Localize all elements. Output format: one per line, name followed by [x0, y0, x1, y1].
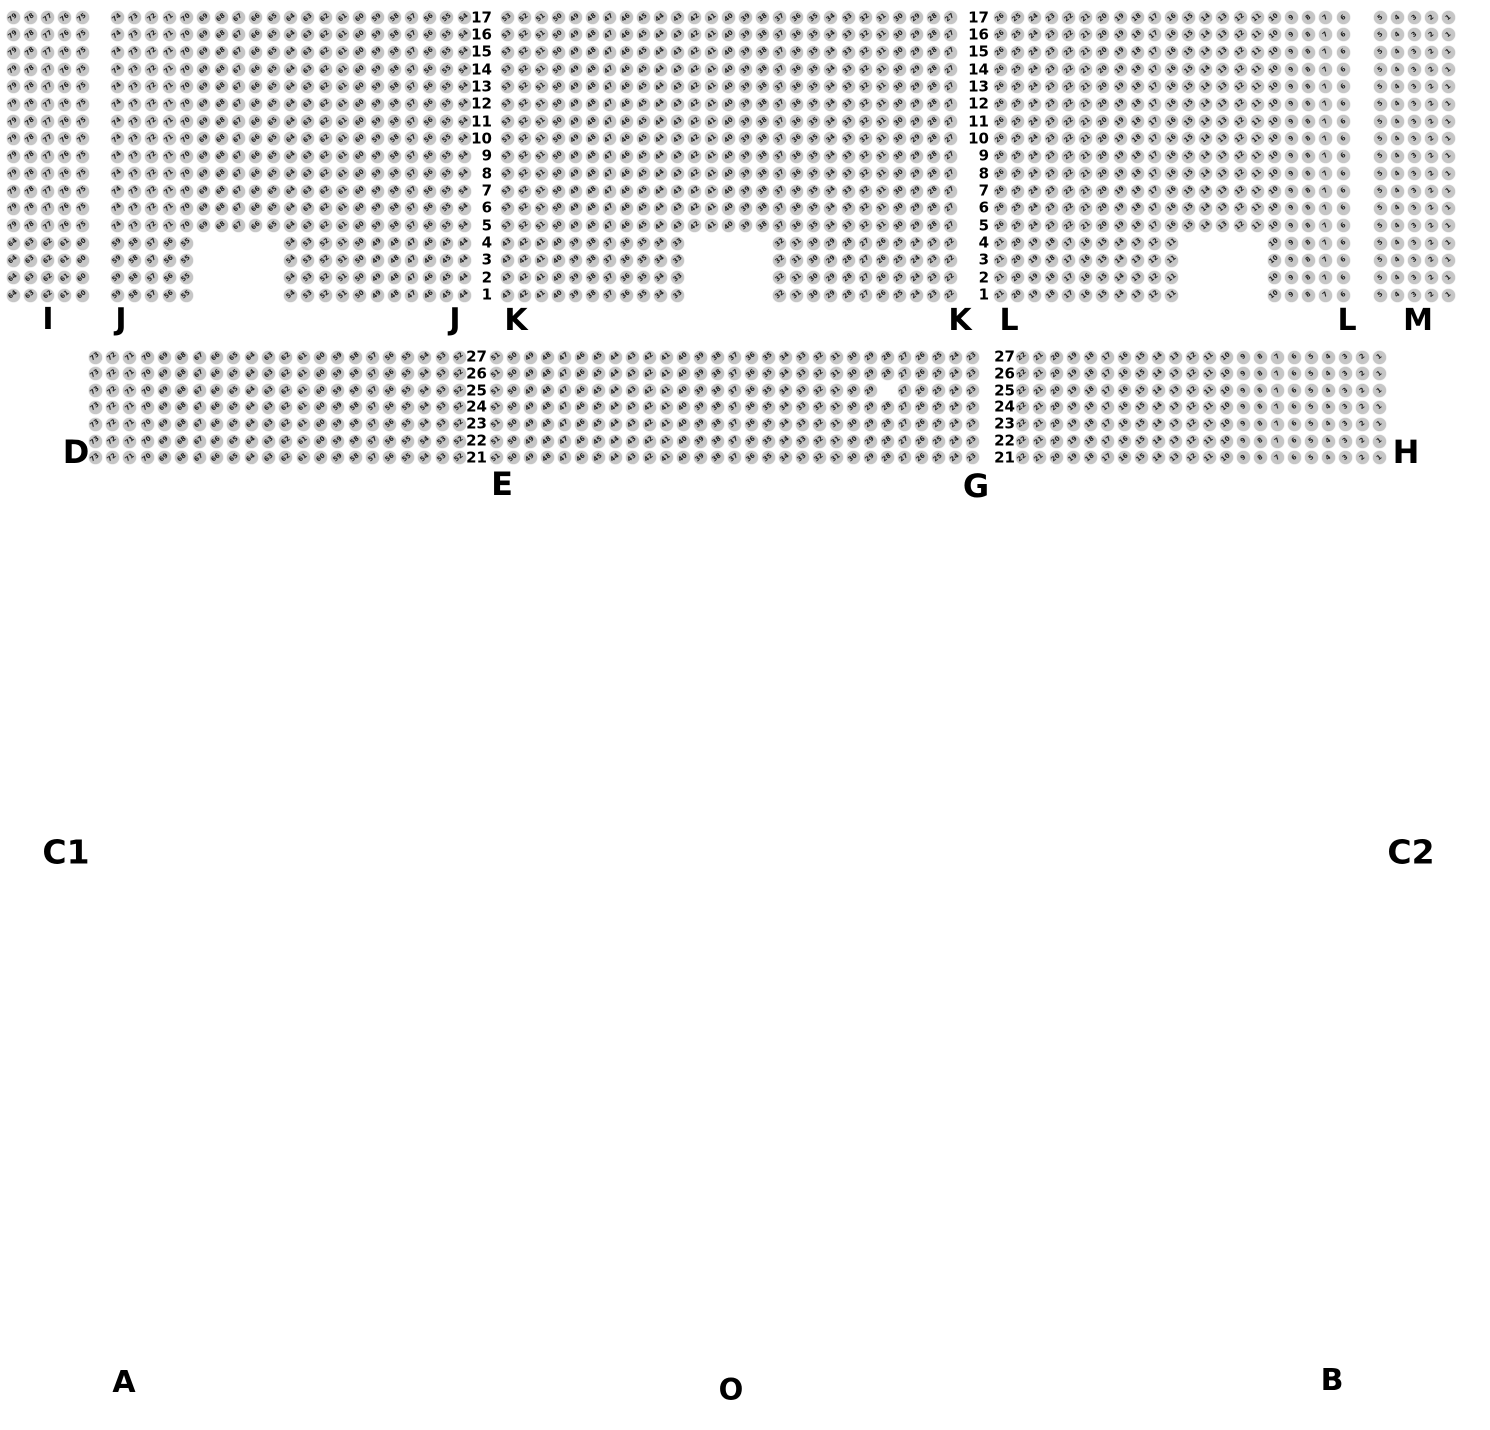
seat[interactable]: 36 [790, 98, 803, 111]
seat[interactable]: 20 [1050, 367, 1063, 380]
seat[interactable]: 15 [1182, 132, 1195, 145]
seat[interactable]: 8 [1302, 202, 1315, 215]
seat[interactable]: 44 [458, 237, 471, 250]
seat[interactable]: 14 [1199, 46, 1212, 59]
seat[interactable]: 70 [180, 98, 193, 111]
seat[interactable]: 30 [893, 150, 906, 163]
seat[interactable]: 49 [569, 167, 582, 180]
seat[interactable]: 26 [876, 271, 889, 284]
seat[interactable]: 63 [301, 63, 314, 76]
seat[interactable]: 50 [552, 150, 565, 163]
seat[interactable]: 55 [401, 367, 414, 380]
seat[interactable]: 39 [569, 254, 582, 267]
seat[interactable]: 40 [677, 384, 690, 397]
seat[interactable]: 10 [1220, 418, 1233, 431]
seat[interactable]: 4 [1391, 202, 1404, 215]
seat[interactable]: 58 [128, 237, 141, 250]
seat[interactable]: 7 [1319, 80, 1332, 93]
seat[interactable]: 38 [756, 150, 769, 163]
seat[interactable]: 51 [535, 150, 548, 163]
seat[interactable]: 59 [371, 46, 384, 59]
seat[interactable]: 26 [994, 132, 1007, 145]
seat[interactable]: 11 [1251, 63, 1264, 76]
seat[interactable]: 24 [1028, 185, 1041, 198]
seat[interactable]: 43 [671, 202, 684, 215]
seat[interactable]: 52 [319, 289, 332, 302]
seat[interactable]: 58 [349, 451, 362, 464]
seat[interactable]: 12 [1148, 271, 1161, 284]
seat[interactable]: 34 [824, 132, 837, 145]
seat[interactable]: 15 [1182, 167, 1195, 180]
seat[interactable]: 41 [705, 28, 718, 41]
seat[interactable]: 19 [1114, 219, 1127, 232]
seat[interactable]: 14 [1152, 351, 1165, 364]
seat[interactable]: 31 [830, 367, 843, 380]
seat[interactable]: 69 [197, 80, 210, 93]
seat[interactable]: 52 [518, 11, 531, 24]
seat[interactable]: 50 [507, 435, 520, 448]
seat[interactable]: 10 [1268, 11, 1281, 24]
seat[interactable]: 46 [620, 185, 633, 198]
seat[interactable]: 49 [524, 401, 537, 414]
seat[interactable]: 55 [440, 80, 453, 93]
seat[interactable]: 24 [910, 289, 923, 302]
seat[interactable]: 35 [762, 401, 775, 414]
seat[interactable]: 55 [440, 167, 453, 180]
seat[interactable]: 12 [1148, 254, 1161, 267]
seat[interactable]: 47 [603, 115, 616, 128]
seat[interactable]: 43 [626, 401, 639, 414]
seat[interactable]: 45 [592, 451, 605, 464]
seat[interactable]: 9 [1285, 167, 1298, 180]
seat[interactable]: 32 [859, 202, 872, 215]
seat[interactable]: 51 [535, 219, 548, 232]
seat[interactable]: 53 [436, 367, 449, 380]
seat[interactable]: 48 [388, 271, 401, 284]
seat[interactable]: 49 [569, 63, 582, 76]
seat[interactable]: 31 [876, 63, 889, 76]
seat[interactable]: 7 [1319, 219, 1332, 232]
seat[interactable]: 39 [739, 185, 752, 198]
seat[interactable]: 21 [1079, 167, 1092, 180]
seat[interactable]: 25 [1011, 219, 1024, 232]
seat[interactable]: 23 [1045, 185, 1058, 198]
seat[interactable]: 76 [58, 185, 71, 198]
seat[interactable]: 43 [671, 132, 684, 145]
seat[interactable]: 44 [654, 46, 667, 59]
seat[interactable]: 65 [267, 202, 280, 215]
seat[interactable]: 5 [1374, 150, 1387, 163]
seat[interactable]: 11 [1251, 98, 1264, 111]
seat[interactable]: 26 [915, 435, 928, 448]
seat[interactable]: 33 [842, 132, 855, 145]
seat[interactable]: 70 [180, 11, 193, 24]
seat[interactable]: 65 [227, 384, 240, 397]
seat[interactable]: 71 [123, 401, 136, 414]
seat[interactable]: 29 [910, 28, 923, 41]
seat[interactable]: 22 [1062, 219, 1075, 232]
seat[interactable]: 3 [1408, 28, 1421, 41]
seat[interactable]: 58 [128, 254, 141, 267]
seat[interactable]: 13 [1216, 185, 1229, 198]
seat[interactable]: 61 [297, 367, 310, 380]
seat[interactable]: 42 [518, 254, 531, 267]
seat[interactable]: 6 [1288, 367, 1301, 380]
seat[interactable]: 51 [535, 115, 548, 128]
seat[interactable]: 51 [336, 254, 349, 267]
seat[interactable]: 54 [458, 28, 471, 41]
seat[interactable]: 64 [7, 271, 20, 284]
seat[interactable]: 25 [1011, 98, 1024, 111]
seat[interactable]: 26 [994, 11, 1007, 24]
seat[interactable]: 36 [790, 80, 803, 93]
seat[interactable]: 69 [197, 219, 210, 232]
seat[interactable]: 16 [1079, 237, 1092, 250]
seat[interactable]: 52 [453, 351, 466, 364]
seat[interactable]: 74 [111, 11, 124, 24]
seat[interactable]: 2 [1425, 80, 1438, 93]
seat[interactable]: 22 [1062, 11, 1075, 24]
seat[interactable]: 34 [779, 367, 792, 380]
seat[interactable]: 53 [436, 401, 449, 414]
seat[interactable]: 12 [1234, 167, 1247, 180]
seat[interactable]: 32 [859, 98, 872, 111]
seat[interactable]: 40 [722, 80, 735, 93]
seat[interactable]: 60 [353, 46, 366, 59]
seat[interactable]: 9 [1285, 289, 1298, 302]
seat[interactable]: 56 [423, 219, 436, 232]
seat[interactable]: 28 [927, 46, 940, 59]
seat[interactable]: 41 [660, 367, 673, 380]
seat[interactable]: 35 [637, 289, 650, 302]
seat[interactable]: 5 [1374, 28, 1387, 41]
seat[interactable]: 17 [1148, 219, 1161, 232]
seat[interactable]: 26 [915, 418, 928, 431]
seat[interactable]: 40 [552, 271, 565, 284]
seat[interactable]: 37 [728, 435, 741, 448]
seat[interactable]: 17 [1148, 11, 1161, 24]
seat[interactable]: 53 [436, 435, 449, 448]
seat[interactable]: 46 [423, 271, 436, 284]
seat[interactable]: 67 [232, 63, 245, 76]
seat[interactable]: 41 [535, 254, 548, 267]
seat[interactable]: 49 [524, 435, 537, 448]
seat[interactable]: 15 [1135, 451, 1148, 464]
seat[interactable]: 4 [1391, 150, 1404, 163]
seat[interactable]: 32 [773, 289, 786, 302]
seat[interactable]: 37 [728, 401, 741, 414]
seat[interactable]: 12 [1148, 289, 1161, 302]
seat[interactable]: 10 [1220, 351, 1233, 364]
seat[interactable]: 16 [1165, 185, 1178, 198]
seat[interactable]: 12 [1186, 418, 1199, 431]
seat[interactable]: 34 [824, 150, 837, 163]
seat[interactable]: 23 [966, 367, 979, 380]
seat[interactable]: 65 [227, 435, 240, 448]
seat[interactable]: 2 [1425, 63, 1438, 76]
seat[interactable]: 34 [779, 418, 792, 431]
seat[interactable]: 64 [245, 351, 258, 364]
seat[interactable]: 18 [1084, 351, 1097, 364]
seat[interactable]: 13 [1216, 132, 1229, 145]
seat[interactable]: 49 [569, 219, 582, 232]
seat[interactable]: 35 [762, 351, 775, 364]
seat[interactable]: 73 [128, 80, 141, 93]
seat[interactable]: 22 [1062, 46, 1075, 59]
seat[interactable]: 50 [507, 367, 520, 380]
seat[interactable]: 27 [944, 167, 957, 180]
seat[interactable]: 39 [694, 435, 707, 448]
seat[interactable]: 75 [76, 98, 89, 111]
seat[interactable]: 54 [458, 80, 471, 93]
seat[interactable]: 36 [745, 418, 758, 431]
seat[interactable]: 22 [1016, 451, 1029, 464]
seat[interactable]: 9 [1237, 384, 1250, 397]
seat[interactable]: 20 [1096, 132, 1109, 145]
seat[interactable]: 12 [1234, 150, 1247, 163]
seat[interactable]: 7 [1319, 254, 1332, 267]
seat[interactable]: 10 [1268, 63, 1281, 76]
seat[interactable]: 29 [910, 219, 923, 232]
seat[interactable]: 9 [1285, 219, 1298, 232]
seat[interactable]: 9 [1285, 150, 1298, 163]
seat[interactable]: 27 [944, 63, 957, 76]
seat[interactable]: 26 [876, 254, 889, 267]
seat[interactable]: 12 [1234, 63, 1247, 76]
seat[interactable]: 38 [756, 202, 769, 215]
seat[interactable]: 15 [1135, 367, 1148, 380]
seat[interactable]: 41 [705, 46, 718, 59]
seat[interactable]: 12 [1234, 11, 1247, 24]
seat[interactable]: 7 [1271, 367, 1284, 380]
seat[interactable]: 5 [1374, 237, 1387, 250]
seat[interactable]: 14 [1199, 167, 1212, 180]
seat[interactable]: 76 [58, 150, 71, 163]
seat[interactable]: 18 [1045, 237, 1058, 250]
seat[interactable]: 77 [41, 98, 54, 111]
seat[interactable]: 17 [1062, 289, 1075, 302]
seat[interactable]: 53 [436, 418, 449, 431]
seat[interactable]: 21 [994, 237, 1007, 250]
seat[interactable]: 20 [1050, 451, 1063, 464]
seat[interactable]: 60 [353, 202, 366, 215]
seat[interactable]: 23 [1045, 46, 1058, 59]
seat[interactable]: 61 [297, 351, 310, 364]
seat[interactable]: 49 [569, 132, 582, 145]
seat[interactable]: 29 [824, 254, 837, 267]
seat[interactable]: 60 [353, 98, 366, 111]
seat[interactable]: 62 [319, 80, 332, 93]
seat[interactable]: 3 [1339, 384, 1352, 397]
seat[interactable]: 22 [1062, 185, 1075, 198]
seat[interactable]: 31 [876, 219, 889, 232]
seat[interactable]: 53 [301, 289, 314, 302]
seat[interactable]: 14 [1152, 401, 1165, 414]
seat[interactable]: 45 [440, 237, 453, 250]
seat[interactable]: 6 [1337, 167, 1350, 180]
seat[interactable]: 37 [603, 289, 616, 302]
seat[interactable]: 6 [1337, 28, 1350, 41]
seat[interactable]: 5 [1305, 451, 1318, 464]
seat[interactable]: 2 [1425, 219, 1438, 232]
seat[interactable]: 68 [175, 351, 188, 364]
seat[interactable]: 32 [859, 28, 872, 41]
seat[interactable]: 24 [910, 237, 923, 250]
seat[interactable]: 28 [927, 115, 940, 128]
seat[interactable]: 65 [267, 11, 280, 24]
seat[interactable]: 24 [910, 271, 923, 284]
seat[interactable]: 3 [1408, 167, 1421, 180]
seat[interactable]: 24 [1028, 219, 1041, 232]
seat[interactable]: 19 [1067, 401, 1080, 414]
seat[interactable]: 66 [249, 132, 262, 145]
seat[interactable]: 15 [1182, 11, 1195, 24]
seat[interactable]: 32 [859, 132, 872, 145]
seat[interactable]: 38 [586, 237, 599, 250]
seat[interactable]: 38 [756, 185, 769, 198]
seat[interactable]: 43 [671, 63, 684, 76]
seat[interactable]: 12 [1186, 401, 1199, 414]
seat[interactable]: 20 [1050, 435, 1063, 448]
seat[interactable]: 65 [227, 451, 240, 464]
seat[interactable]: 60 [314, 351, 327, 364]
seat[interactable]: 60 [353, 80, 366, 93]
seat[interactable]: 71 [163, 219, 176, 232]
seat[interactable]: 61 [336, 11, 349, 24]
seat[interactable]: 41 [535, 289, 548, 302]
seat[interactable]: 61 [58, 237, 71, 250]
seat[interactable]: 19 [1028, 271, 1041, 284]
seat[interactable]: 29 [864, 401, 877, 414]
seat[interactable]: 42 [643, 351, 656, 364]
seat[interactable]: 13 [1216, 167, 1229, 180]
seat[interactable]: 34 [779, 435, 792, 448]
seat[interactable]: 37 [773, 132, 786, 145]
seat[interactable]: 7 [1271, 384, 1284, 397]
seat[interactable]: 32 [813, 367, 826, 380]
seat[interactable]: 60 [353, 115, 366, 128]
seat[interactable]: 78 [24, 98, 37, 111]
seat[interactable]: 13 [1216, 63, 1229, 76]
seat[interactable]: 49 [569, 46, 582, 59]
seat[interactable]: 67 [193, 351, 206, 364]
seat[interactable]: 25 [932, 451, 945, 464]
seat[interactable]: 4 [1391, 132, 1404, 145]
seat[interactable]: 53 [501, 150, 514, 163]
seat[interactable]: 23 [966, 435, 979, 448]
seat[interactable]: 31 [830, 451, 843, 464]
seat[interactable]: 41 [705, 80, 718, 93]
seat[interactable]: 6 [1337, 11, 1350, 24]
seat[interactable]: 24 [1028, 150, 1041, 163]
seat[interactable]: 9 [1285, 115, 1298, 128]
seat[interactable]: 33 [671, 254, 684, 267]
seat[interactable]: 14 [1114, 271, 1127, 284]
seat[interactable]: 9 [1285, 80, 1298, 93]
seat[interactable]: 66 [249, 63, 262, 76]
seat[interactable]: 18 [1131, 28, 1144, 41]
seat[interactable]: 78 [24, 46, 37, 59]
seat[interactable]: 44 [654, 202, 667, 215]
seat[interactable]: 46 [620, 46, 633, 59]
seat[interactable]: 64 [284, 28, 297, 41]
seat[interactable]: 19 [1114, 11, 1127, 24]
seat[interactable]: 75 [76, 202, 89, 215]
seat[interactable]: 72 [106, 384, 119, 397]
seat[interactable]: 52 [518, 115, 531, 128]
seat[interactable]: 15 [1182, 185, 1195, 198]
seat[interactable]: 31 [830, 401, 843, 414]
seat[interactable]: 2 [1356, 435, 1369, 448]
seat[interactable]: 55 [180, 254, 193, 267]
seat[interactable]: 26 [994, 28, 1007, 41]
seat[interactable]: 62 [279, 435, 292, 448]
seat[interactable]: 51 [490, 351, 503, 364]
seat[interactable]: 42 [688, 132, 701, 145]
seat[interactable]: 44 [609, 451, 622, 464]
seat[interactable]: 13 [1216, 98, 1229, 111]
seat[interactable]: 45 [440, 254, 453, 267]
seat[interactable]: 15 [1182, 150, 1195, 163]
seat[interactable]: 3 [1408, 132, 1421, 145]
seat[interactable]: 46 [620, 219, 633, 232]
seat[interactable]: 62 [319, 132, 332, 145]
seat[interactable]: 73 [128, 167, 141, 180]
seat[interactable]: 45 [637, 132, 650, 145]
seat[interactable]: 47 [405, 237, 418, 250]
seat[interactable]: 31 [876, 28, 889, 41]
seat[interactable]: 14 [1199, 219, 1212, 232]
seat[interactable]: 43 [671, 115, 684, 128]
seat[interactable]: 3 [1339, 451, 1352, 464]
seat[interactable]: 79 [7, 167, 20, 180]
seat[interactable]: 16 [1118, 435, 1131, 448]
seat[interactable]: 18 [1131, 132, 1144, 145]
seat[interactable]: 59 [111, 289, 124, 302]
seat[interactable]: 2 [1356, 351, 1369, 364]
seat[interactable]: 18 [1131, 80, 1144, 93]
seat[interactable]: 67 [232, 185, 245, 198]
seat[interactable]: 32 [859, 115, 872, 128]
seat[interactable]: 65 [267, 167, 280, 180]
seat[interactable]: 41 [705, 202, 718, 215]
seat[interactable]: 29 [824, 271, 837, 284]
seat[interactable]: 32 [859, 150, 872, 163]
seat[interactable]: 54 [284, 289, 297, 302]
seat[interactable]: 73 [128, 185, 141, 198]
seat[interactable]: 71 [163, 202, 176, 215]
seat[interactable]: 13 [1169, 401, 1182, 414]
seat[interactable]: 55 [440, 185, 453, 198]
seat[interactable]: 7 [1319, 46, 1332, 59]
seat[interactable]: 42 [688, 219, 701, 232]
seat[interactable]: 17 [1148, 63, 1161, 76]
seat[interactable]: 10 [1268, 132, 1281, 145]
seat[interactable]: 71 [163, 28, 176, 41]
seat[interactable]: 48 [541, 351, 554, 364]
seat[interactable]: 3 [1408, 80, 1421, 93]
seat[interactable]: 67 [232, 167, 245, 180]
seat[interactable]: 72 [106, 351, 119, 364]
seat[interactable]: 52 [319, 237, 332, 250]
seat[interactable]: 47 [603, 150, 616, 163]
seat[interactable]: 14 [1199, 202, 1212, 215]
seat[interactable]: 28 [927, 202, 940, 215]
seat[interactable]: 78 [24, 167, 37, 180]
seat[interactable]: 70 [141, 367, 154, 380]
seat[interactable]: 60 [76, 254, 89, 267]
seat[interactable]: 3 [1408, 46, 1421, 59]
